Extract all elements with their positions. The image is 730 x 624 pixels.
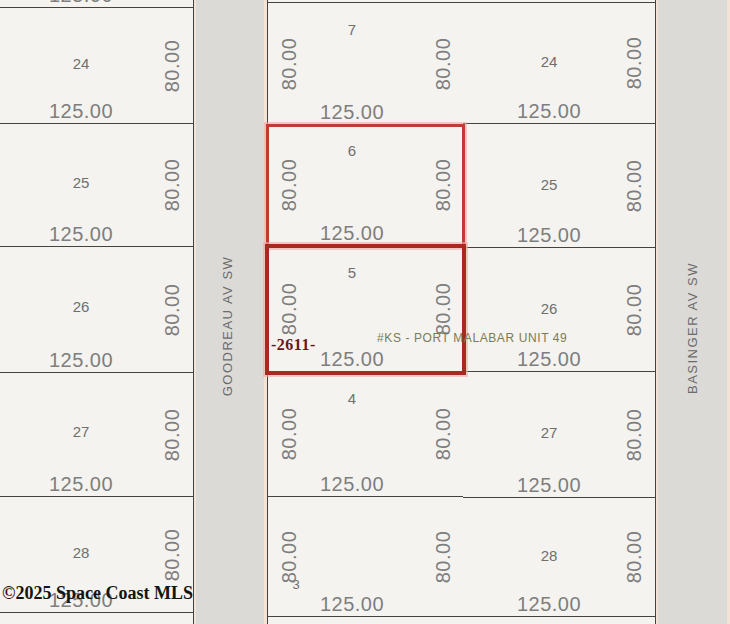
lot-dimension-bottom: 125.00 bbox=[517, 475, 581, 495]
lot-east-27: 27125.0080.00 bbox=[463, 372, 655, 498]
lot-number: 28 bbox=[541, 547, 558, 564]
lot-number: 7 bbox=[348, 21, 356, 38]
lot-dimension-right: 80.00 bbox=[433, 408, 453, 461]
lot-number: 26 bbox=[541, 300, 558, 317]
lot-dimension-right: 80.00 bbox=[433, 530, 453, 583]
lot-west-26: 26125.0080.00 bbox=[0, 247, 193, 373]
lot-east-28: 28125.0080.00 bbox=[463, 498, 655, 617]
lot-dimension-bottom: 125.00 bbox=[517, 101, 581, 121]
lot-number: 4 bbox=[348, 390, 356, 407]
lot-dimension-bottom: 125.00 bbox=[49, 0, 113, 5]
lot-dimension-right: 80.00 bbox=[162, 408, 182, 461]
lot-dimension-right: 80.00 bbox=[162, 159, 182, 212]
copyright-watermark: ©2025 Space Coast MLS bbox=[2, 583, 193, 604]
lot-dimension-bottom: 125.00 bbox=[517, 349, 581, 369]
lot-dimension-right: 80.00 bbox=[433, 37, 453, 90]
lot-center-4: 4125.0080.0080.00 bbox=[268, 372, 464, 497]
lot-west-27: 27125.0080.00 bbox=[0, 373, 193, 497]
lot-dimension-right: 80.00 bbox=[624, 37, 644, 90]
lot-west-24: 24125.0080.00 bbox=[0, 8, 193, 124]
lot-dimension-bottom: 125.00 bbox=[320, 594, 384, 614]
lot-east-25: 25125.0080.00 bbox=[463, 124, 655, 248]
lot-west-partial bbox=[0, 613, 193, 624]
lot-number: 25 bbox=[541, 176, 558, 193]
lot-east-24: 24125.0080.00 bbox=[463, 3, 655, 124]
lot-dimension-bottom: 125.00 bbox=[320, 102, 384, 122]
lot-east-26: 26125.0080.00 bbox=[463, 248, 655, 372]
lot-dimension-bottom: 125.00 bbox=[320, 474, 384, 494]
lot-dimension-right: 80.00 bbox=[624, 159, 644, 212]
lot-center-3: 3125.0080.0080.00 bbox=[268, 497, 464, 617]
street-name-label: BASINGER AV SW bbox=[685, 262, 700, 394]
lot-dimension-left: 80.00 bbox=[279, 530, 299, 583]
lot-dimension-right: 80.00 bbox=[624, 408, 644, 461]
lot-center-7: 7125.0080.0080.00 bbox=[268, 3, 464, 125]
selected-lot-outline bbox=[265, 244, 466, 375]
lot-number: 24 bbox=[541, 53, 558, 70]
lot-dimension-right: 80.00 bbox=[162, 528, 182, 581]
lot-dimension-bottom: 125.00 bbox=[49, 474, 113, 494]
subdivision-label: #KS - PORT MALABAR UNIT 49 bbox=[377, 331, 567, 345]
plat-map: #KS - PORT MALABAR UNIT 49 -2611- ©2025 … bbox=[0, 0, 730, 624]
lot-dimension-bottom: 125.00 bbox=[49, 224, 113, 244]
block-west: 125.0024125.0080.0025125.0080.0026125.00… bbox=[0, 0, 194, 624]
lot-number: 25 bbox=[73, 174, 90, 191]
lot-dimension-right: 80.00 bbox=[162, 283, 182, 336]
lot-dimension-left: 80.00 bbox=[279, 408, 299, 461]
lot-number: 27 bbox=[73, 423, 90, 440]
block-east: 24125.0080.0025125.0080.0026125.0080.002… bbox=[463, 0, 656, 624]
lot-number: 24 bbox=[73, 55, 90, 72]
lot-dimension-right: 80.00 bbox=[624, 283, 644, 336]
lot-west-partial: 125.00 bbox=[0, 0, 193, 8]
lot-dimension-bottom: 125.00 bbox=[49, 101, 113, 121]
street-name-label: GOODREAU AV SW bbox=[220, 256, 235, 397]
lot-east-partial bbox=[463, 617, 655, 624]
lot-number: 28 bbox=[73, 544, 90, 561]
selected-lot-address-label: -2611- bbox=[271, 336, 316, 354]
lot-dimension-bottom: 125.00 bbox=[517, 225, 581, 245]
lot-number: 26 bbox=[73, 298, 90, 315]
lot-dimension-right: 80.00 bbox=[624, 531, 644, 584]
lot-center-partial bbox=[268, 617, 464, 624]
lot-number: 27 bbox=[541, 424, 558, 441]
lot-dimension-right: 80.00 bbox=[162, 39, 182, 92]
lot-dimension-left: 80.00 bbox=[279, 37, 299, 90]
lot-dimension-bottom: 125.00 bbox=[517, 594, 581, 614]
lot-west-25: 25125.0080.00 bbox=[0, 124, 193, 247]
highlighted-lot-outline bbox=[266, 124, 465, 248]
lot-dimension-bottom: 125.00 bbox=[49, 350, 113, 370]
